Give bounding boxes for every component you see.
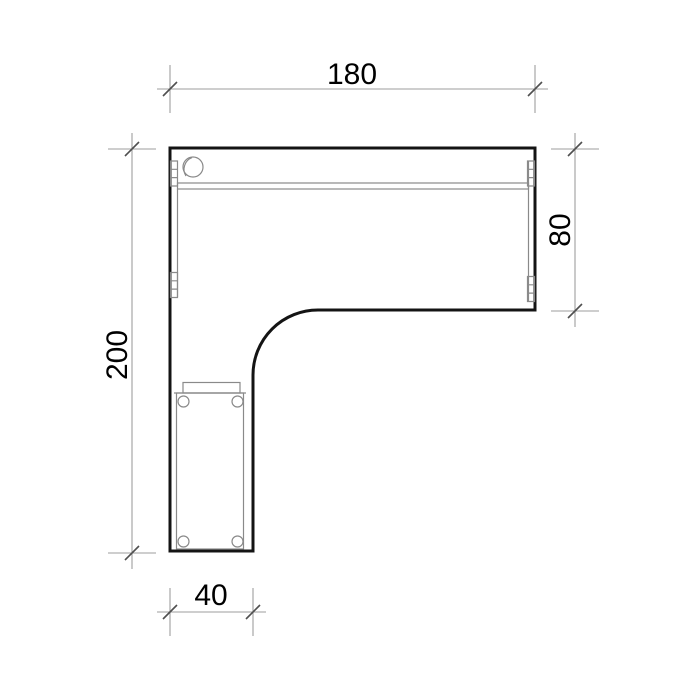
connector-mark [171,273,178,298]
cable-grommet-icon [183,157,203,177]
dim-label-bottom-width: 40 [194,579,227,612]
detail-layer [171,157,535,549]
caster-wheel [232,396,243,407]
pedestal-handle [183,383,240,394]
dim-label-top-width: 180 [327,58,377,91]
desk-worktop-outline [170,148,535,551]
dim-label-right-depth: 80 [544,213,577,246]
dimension-labels: 180 80 200 40 [101,58,577,612]
caster-wheel [232,536,243,547]
caster-wheel [178,396,189,407]
back-rail [178,183,529,189]
dim-label-left-height: 200 [101,330,134,380]
pedestal-body [177,393,244,549]
worktop-layer [170,148,535,551]
connector-mark [171,161,178,186]
drawing-canvas: 180 80 200 40 [0,0,700,700]
caster-wheel [178,536,189,547]
desk-plan-drawing: 180 80 200 40 [0,0,700,700]
